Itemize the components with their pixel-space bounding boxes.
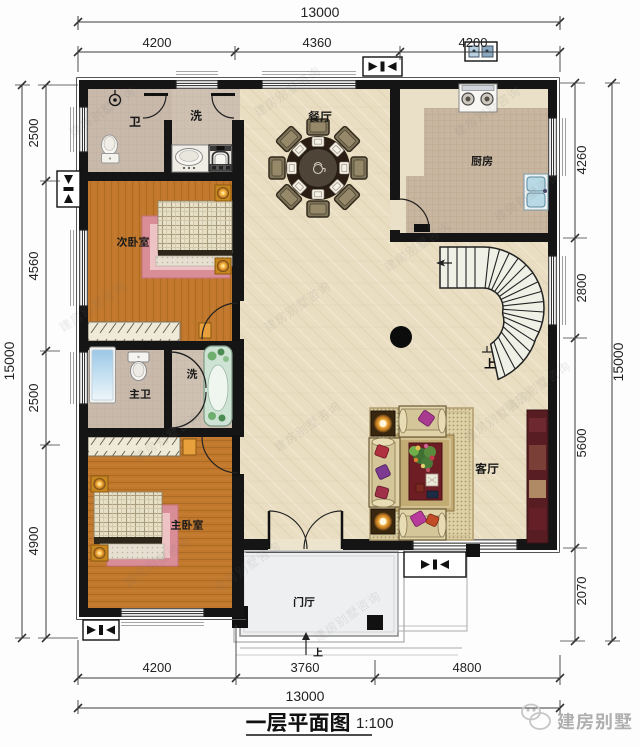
- svg-text:4360: 4360: [303, 35, 332, 50]
- svg-text:5600: 5600: [574, 429, 589, 458]
- svg-text:2070: 2070: [574, 577, 589, 606]
- svg-text:4200: 4200: [143, 35, 172, 50]
- svg-text:4200: 4200: [143, 660, 172, 675]
- svg-text:15000: 15000: [1, 341, 17, 380]
- svg-text:13000: 13000: [286, 688, 325, 704]
- svg-text:2500: 2500: [26, 119, 41, 148]
- svg-text:13000: 13000: [301, 4, 340, 20]
- svg-text:3760: 3760: [291, 660, 320, 675]
- svg-text:15000: 15000: [610, 342, 626, 381]
- svg-text:4800: 4800: [453, 660, 482, 675]
- svg-text:1:100: 1:100: [356, 715, 394, 732]
- svg-text:4260: 4260: [574, 146, 589, 175]
- svg-text:2800: 2800: [574, 274, 589, 303]
- svg-text:2500: 2500: [26, 384, 41, 413]
- svg-text:4200: 4200: [459, 35, 488, 50]
- svg-text:4560: 4560: [26, 252, 41, 281]
- svg-text:4900: 4900: [26, 527, 41, 556]
